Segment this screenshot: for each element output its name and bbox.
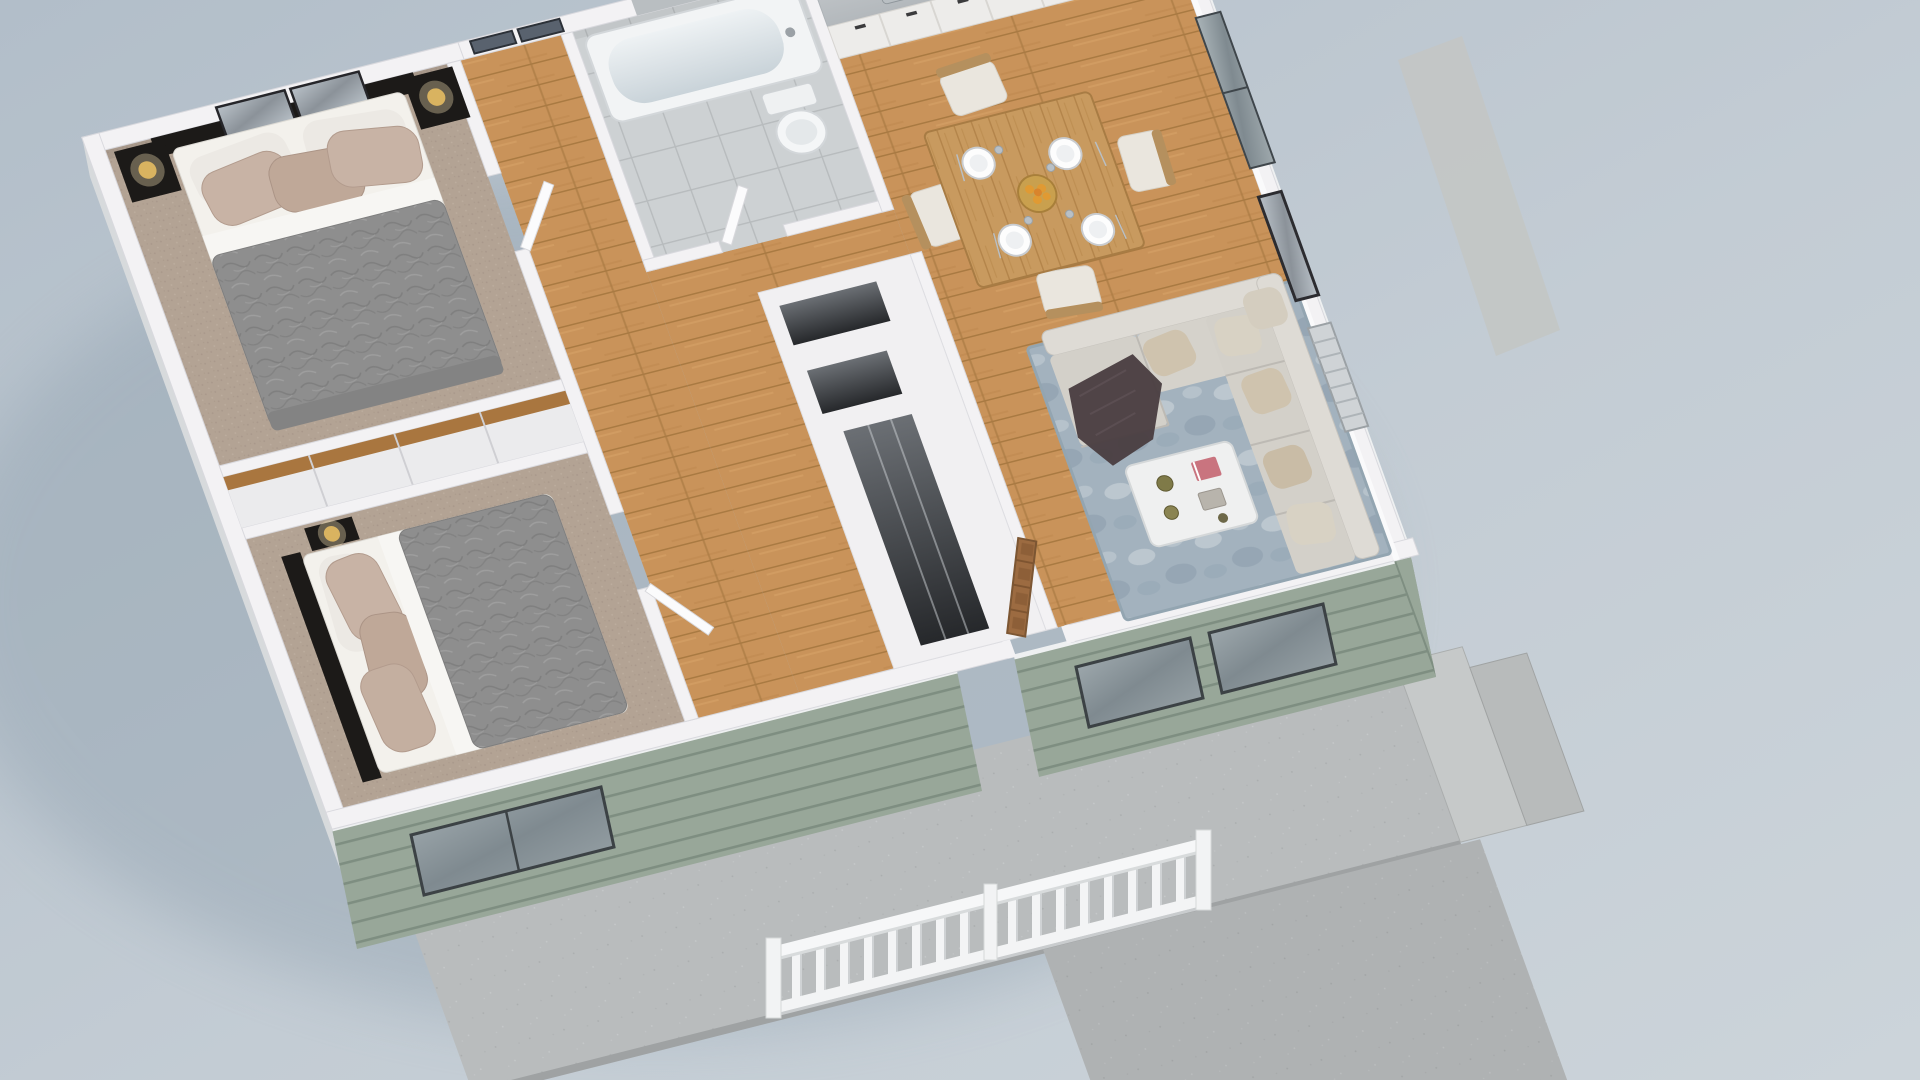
dining-chair-bottom [1035,265,1104,320]
railing-post-right [1196,830,1211,910]
floor-plan-render [0,0,1920,1080]
railing-post-mid [984,884,997,960]
railing-post-left [766,938,781,1018]
floor-plan-svg [0,0,1920,1080]
master-pillow-blush-3 [324,125,426,189]
